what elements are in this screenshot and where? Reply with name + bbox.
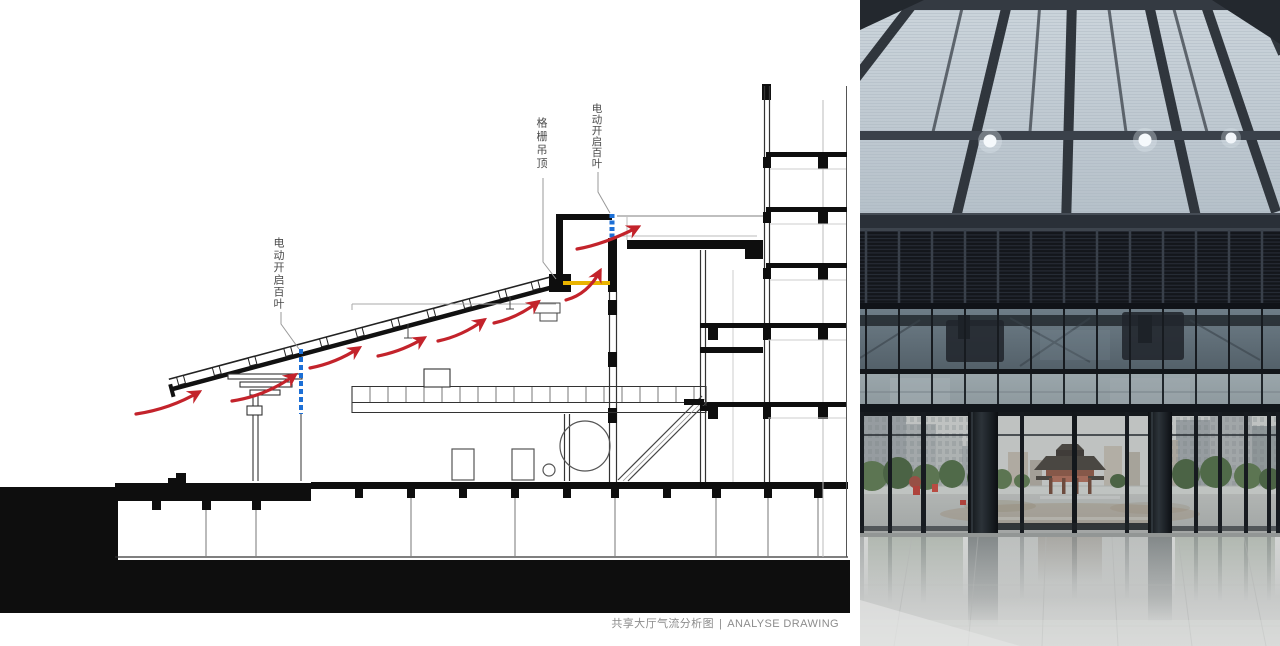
label-canopy-louver: 电动开启百叶 bbox=[273, 237, 284, 310]
label-grille-ceiling: 格栅吊顶 bbox=[536, 117, 547, 171]
glass-band-upper bbox=[860, 309, 1280, 374]
airflow-arrow bbox=[438, 320, 484, 341]
ventilation-louver-band bbox=[860, 228, 1280, 309]
floor-reflection-pier bbox=[968, 537, 998, 627]
floor-reflection-trees bbox=[868, 537, 963, 597]
escalator bbox=[618, 396, 714, 481]
ground-poche bbox=[0, 473, 850, 613]
drawing-caption: 共享大厅气流分析图|ANALYSE DRAWING bbox=[611, 615, 839, 631]
floor-reflection-pier bbox=[1148, 537, 1172, 623]
panel-divider bbox=[852, 0, 860, 646]
page: 电动开启百叶 格栅吊顶 电动开启百叶 共享大厅气流分析图|ANALYSE DRA… bbox=[0, 0, 1280, 646]
airflow-section-diagram: 电动开启百叶 格栅吊顶 电动开启百叶 共享大厅气流分析图|ANALYSE DRA… bbox=[0, 0, 855, 646]
caption-en: ANALYSE DRAWING bbox=[727, 618, 839, 630]
floor-reflection-gate bbox=[1038, 537, 1102, 583]
airflow-arrow bbox=[494, 302, 538, 323]
canopy-roof bbox=[167, 273, 568, 397]
glass-band-lower bbox=[860, 374, 1280, 412]
interior-objects bbox=[452, 421, 610, 480]
polished-floor bbox=[860, 537, 1280, 646]
airflow-arrow bbox=[136, 392, 199, 414]
label-clerestory-louver: 电动开启百叶 bbox=[591, 103, 602, 169]
atrium-photo bbox=[860, 0, 1280, 646]
floor-reflection-trees bbox=[1175, 537, 1275, 597]
basement-structure bbox=[115, 498, 848, 557]
caption-zh: 共享大厅气流分析图 bbox=[611, 618, 714, 630]
airflow-arrow bbox=[378, 338, 424, 356]
photo-art bbox=[860, 0, 1280, 646]
canopy-support-assembly bbox=[228, 374, 302, 481]
caption-separator: | bbox=[719, 618, 722, 630]
mezzanine-walkway bbox=[352, 369, 706, 413]
airflow-arrow bbox=[566, 271, 600, 300]
section-drawing bbox=[0, 0, 855, 646]
clerestory-box bbox=[549, 214, 763, 292]
